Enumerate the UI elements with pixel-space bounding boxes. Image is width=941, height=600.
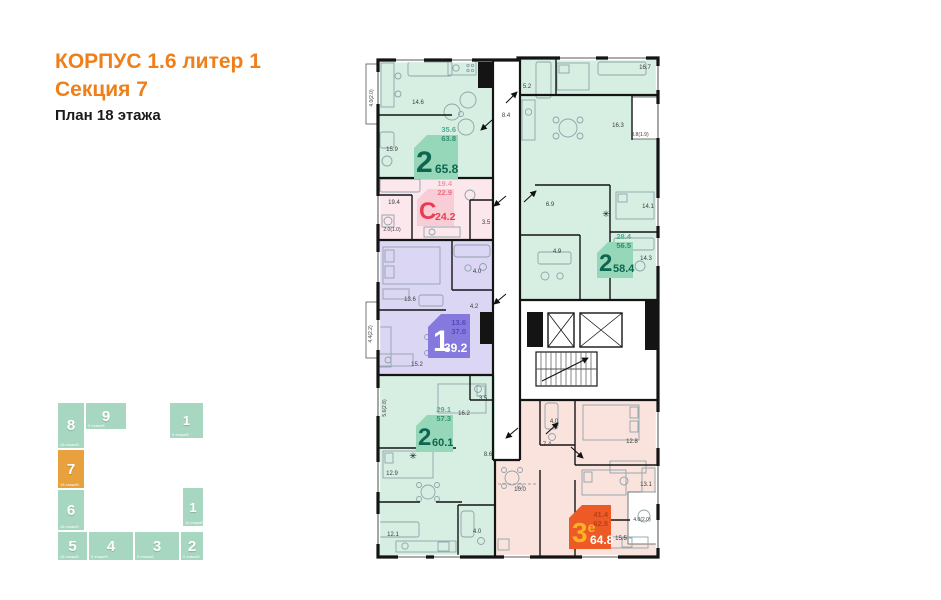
section-block-1-top[interactable]: 1 9 этажей: [170, 403, 203, 438]
section-block-5[interactable]: 5 18 этажей: [58, 532, 87, 560]
room-area-label: 6.9: [546, 202, 555, 208]
svg-text:С: С: [419, 198, 436, 225]
room-area-label: 15.2: [411, 362, 423, 368]
room-area-label: 16.7: [639, 65, 651, 71]
room-area-label: 4.2: [470, 304, 479, 310]
room-area-label: 3.5: [482, 220, 491, 226]
section-block-1-right[interactable]: 1 18 этажей: [183, 488, 203, 526]
room-area-label: 4.0(2.0): [633, 517, 651, 523]
core: [536, 313, 622, 386]
svg-text:64.8: 64.8: [590, 533, 614, 547]
stairs: [536, 352, 597, 386]
apartment-badge-3e-64[interactable]: 3е 64.8 41.4 62.8: [569, 505, 614, 549]
svg-text:35.6: 35.6: [441, 125, 456, 134]
svg-text:39.2: 39.2: [444, 341, 468, 355]
section-block-3[interactable]: 3 9 этажей: [135, 532, 179, 560]
svg-text:13.6: 13.6: [451, 318, 466, 327]
room-area-label: 5.6(2.8): [382, 399, 388, 417]
section-block-2[interactable]: 2 9 этажей: [181, 532, 203, 560]
section-block-8[interactable]: 8 18 этажей: [58, 403, 84, 448]
svg-text:19.4: 19.4: [437, 179, 452, 188]
page: КОРПУС 1.6 литер 1 Секция 7 План 18 этаж…: [0, 0, 941, 600]
svg-text:2: 2: [599, 250, 612, 277]
svg-text:22.9: 22.9: [437, 188, 452, 197]
room-area-label: 14.6: [412, 100, 424, 106]
room-area-label: 8.6: [484, 452, 493, 458]
svg-text:62.8: 62.8: [593, 519, 608, 528]
section-block-6[interactable]: 6 18 этажей: [58, 490, 84, 530]
svg-text:60.1: 60.1: [432, 437, 453, 449]
room-area-label: 10.0: [514, 487, 526, 493]
section-block-7-active[interactable]: 7 18 этажей: [58, 450, 84, 488]
room-area-label: 16.2: [458, 411, 470, 417]
room-area-label: 12.8: [626, 439, 638, 445]
room-area-label: 4.0: [473, 269, 482, 275]
room-area-label: 13.6: [404, 297, 416, 303]
room-area-label: 14.3: [640, 256, 652, 262]
room-area-label: 4.4(2.2): [368, 325, 374, 343]
section-block-9[interactable]: 9 9 этажей: [86, 403, 126, 429]
room-area-label: 12.1: [387, 532, 399, 538]
room-area-label: 16.3: [612, 123, 624, 129]
room-area-label: 2.0(1.0): [383, 227, 401, 233]
svg-text:37.0: 37.0: [451, 327, 466, 336]
vent-icon: ✳: [602, 209, 610, 219]
svg-text:2: 2: [418, 424, 431, 451]
room-area-label: 13.1: [640, 482, 652, 488]
room-area-label: 15.5: [615, 536, 627, 542]
svg-text:63.8: 63.8: [441, 134, 456, 143]
floor-plan: ✳ ✳ 14.6 15.9 8.4 5.2 16.7 4.0(2.0) 19.4…: [0, 0, 941, 600]
room-area-label: 3.5: [479, 396, 488, 402]
room-area-label: 5.2: [523, 84, 532, 90]
svg-text:56.5: 56.5: [616, 241, 631, 250]
room-area-label: 14.1: [642, 204, 654, 210]
section-block-4[interactable]: 4 9 этажей: [89, 532, 133, 560]
elevator-shaft: [548, 313, 622, 347]
room-area-label: 8.4: [502, 113, 511, 119]
room-area-label: 15.9: [386, 147, 398, 153]
room-area-label: 12.9: [386, 471, 398, 477]
svg-text:65.8: 65.8: [435, 162, 459, 176]
svg-text:2: 2: [416, 146, 433, 179]
svg-text:24.2: 24.2: [435, 211, 456, 223]
room-area-label: 3.8(1.9): [631, 132, 649, 138]
svg-text:29.1: 29.1: [436, 405, 451, 414]
room-area-label: 4.0(2.0): [369, 89, 375, 107]
room-area-label: 7.4: [543, 442, 552, 448]
svg-text:57.3: 57.3: [436, 414, 451, 423]
svg-text:58.4: 58.4: [613, 263, 635, 275]
svg-text:41.4: 41.4: [593, 510, 608, 519]
svg-text:28.4: 28.4: [616, 232, 631, 241]
room-area-label: 4.0: [550, 419, 559, 425]
vent-icon: ✳: [409, 451, 417, 461]
room-area-label: 19.4: [388, 200, 400, 206]
room-area-label: 4.9: [553, 249, 562, 255]
room-area-label: 4.0: [473, 529, 482, 535]
